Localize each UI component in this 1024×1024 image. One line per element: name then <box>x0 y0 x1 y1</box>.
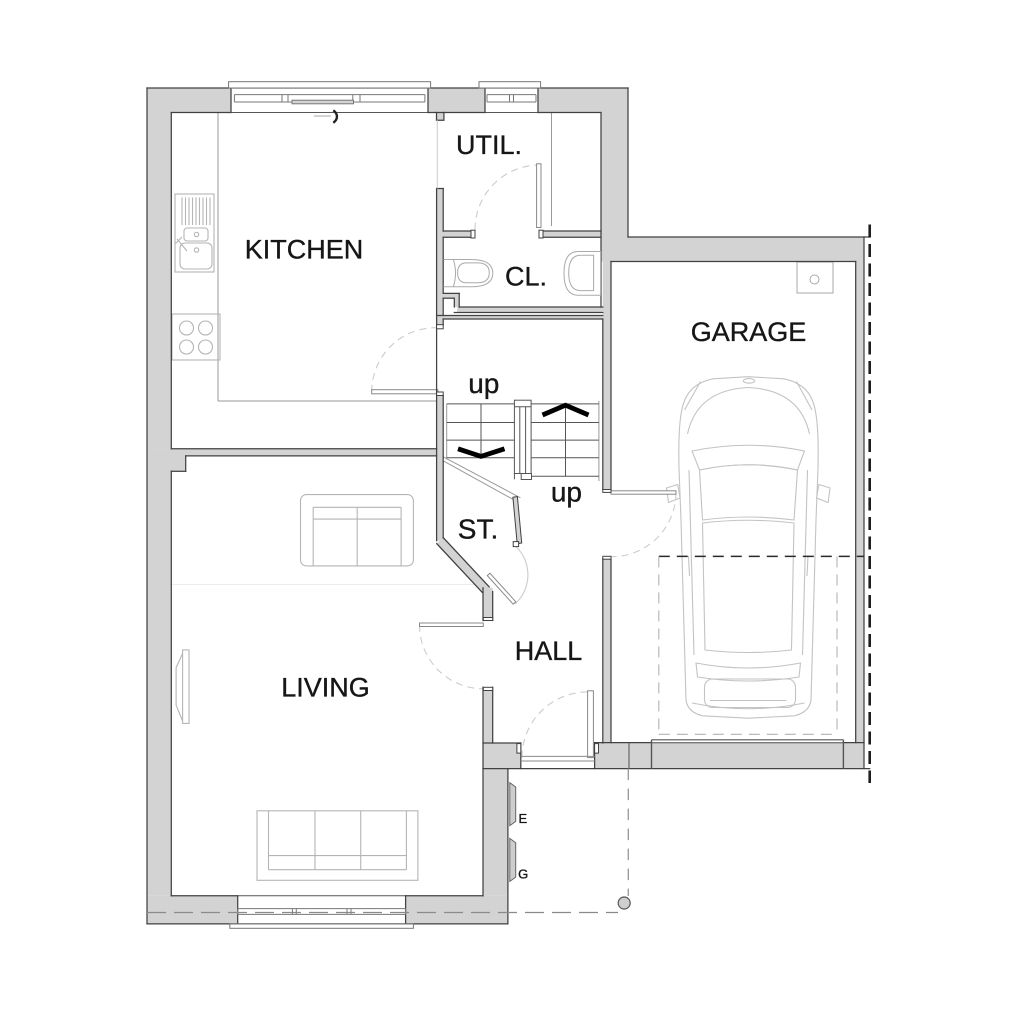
svg-text:UTIL.: UTIL. <box>456 130 522 160</box>
svg-text:E: E <box>518 811 527 826</box>
svg-text:LIVING: LIVING <box>281 672 370 702</box>
svg-text:GARAGE: GARAGE <box>691 317 807 347</box>
svg-text:HALL: HALL <box>515 636 583 666</box>
svg-text:G: G <box>518 866 528 881</box>
svg-text:KITCHEN: KITCHEN <box>245 235 364 265</box>
svg-text:up: up <box>468 368 499 399</box>
svg-text:CL.: CL. <box>505 261 547 291</box>
svg-text:up: up <box>551 476 582 507</box>
svg-text:ST.: ST. <box>458 514 498 545</box>
